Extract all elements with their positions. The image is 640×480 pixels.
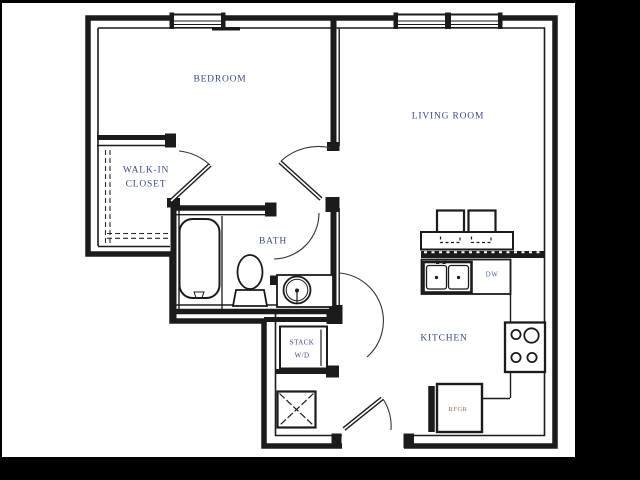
- appliance-label-dishwasher: DW: [486, 272, 499, 279]
- appliance-label-wd: W/D: [295, 353, 310, 360]
- window-sill-bar: [212, 27, 240, 31]
- closet-rod-dashes: [106, 150, 171, 243]
- appliance-label-stack: STACK: [290, 340, 314, 347]
- room-label-walk-in-closet-line2: CLOSET: [126, 180, 167, 190]
- room-label-walk-in-closet-line1: WALK-IN: [123, 166, 169, 176]
- stack-washer-dryer: [280, 327, 327, 369]
- window-living-1: [394, 13, 450, 30]
- room-label-bedroom: BEDROOM: [193, 75, 246, 85]
- entry-opening: [332, 433, 415, 452]
- window-living-2: [447, 13, 503, 30]
- room-label-bath: BATH: [259, 237, 287, 247]
- closet-door: [171, 151, 210, 201]
- bar-stools: [437, 211, 496, 233]
- window-bedroom: [170, 13, 226, 30]
- cooktop: [505, 323, 545, 373]
- bathtub: [180, 216, 223, 309]
- toilet: [233, 255, 267, 306]
- linen-closet: [278, 392, 316, 428]
- room-label-kitchen: KITCHEN: [420, 334, 467, 344]
- hall-door-swing: [339, 273, 383, 357]
- appliance-label-refrigerator: RFGR: [449, 407, 468, 414]
- floor-plan-drawing: [0, 0, 640, 480]
- vanity-sink: [270, 275, 333, 307]
- entry-door: [344, 399, 391, 431]
- bedroom-door: [280, 146, 331, 199]
- room-label-living-room: LIVING ROOM: [412, 112, 484, 122]
- floor-plan-canvas: BEDROOM WALK-IN CLOSET LIVING ROOM BATH …: [0, 0, 640, 480]
- breakfast-counter: [421, 232, 513, 250]
